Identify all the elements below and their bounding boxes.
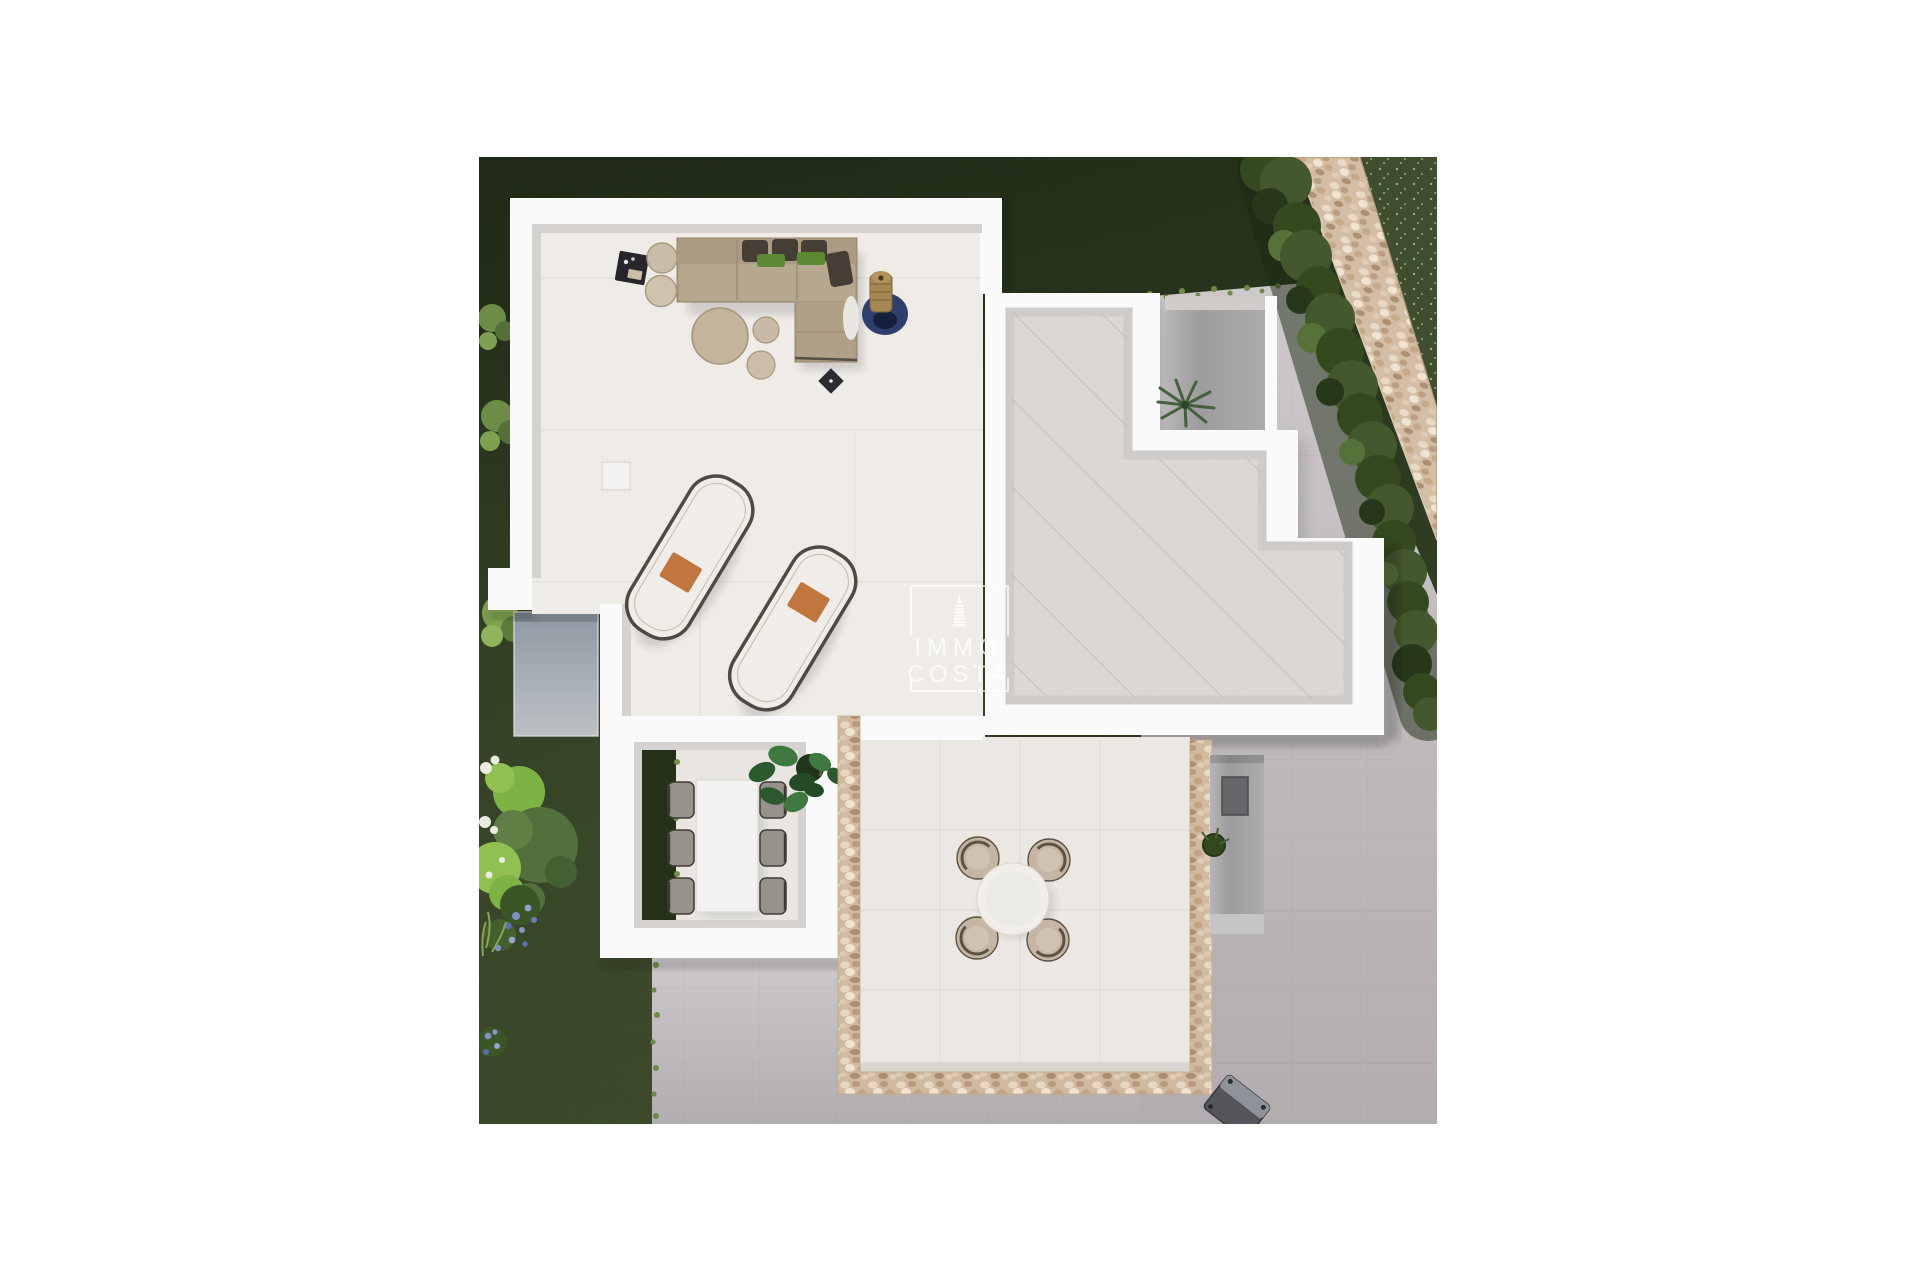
glass-door [1222,777,1248,815]
stone-bordered-patio [838,716,1212,1094]
green-pillow [797,252,825,265]
pouf-small [747,351,775,379]
side-table [646,276,677,307]
villa-aerial-render: IMMO COSTA [0,0,1920,1280]
tray-table [615,251,650,286]
courtyard-notch [1158,296,1277,430]
coffee-table-pouf [692,308,748,364]
villa-aerial-render-page: IMMO COSTA [0,0,1920,1280]
stone-border-left [838,716,860,1094]
watermark-line1: IMMO [914,634,1003,661]
white-planter-box [602,462,630,490]
sunken-patio [514,612,598,736]
pouf-small [753,317,779,343]
stone-border-right [1190,740,1212,1094]
woven-planter [870,271,892,312]
green-pillow [757,254,785,267]
side-table [647,243,677,273]
watermark-line2: COSTA [907,661,1010,688]
dining-courtyard [600,716,848,958]
stone-border-bottom [838,1072,1212,1094]
dining-table [696,780,758,912]
white-throw [843,296,859,340]
stair-recess [1202,755,1264,934]
